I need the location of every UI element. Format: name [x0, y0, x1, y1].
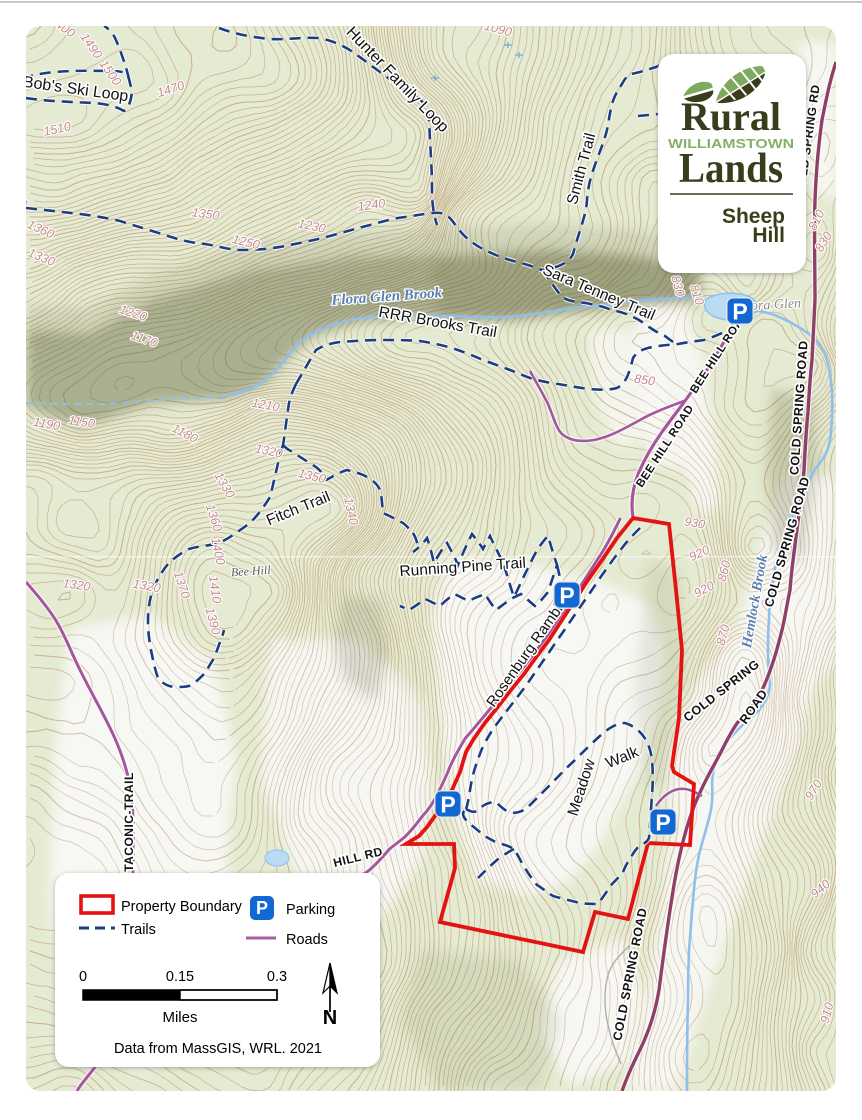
svg-text:Rural: Rural [681, 94, 781, 139]
svg-text:P: P [732, 299, 747, 325]
svg-text:Trails: Trails [121, 922, 156, 938]
svg-text:Miles: Miles [162, 1009, 197, 1026]
svg-text:TACONIC-TRAIL: TACONIC-TRAIL [122, 772, 136, 872]
svg-text:P: P [559, 583, 574, 609]
svg-text:Lands: Lands [679, 146, 783, 192]
svg-text:N: N [323, 1007, 337, 1029]
svg-text:P: P [256, 898, 268, 918]
svg-text:Data from MassGIS, WRL. 2021: Data from MassGIS, WRL. 2021 [114, 1041, 322, 1057]
svg-text:P: P [655, 810, 670, 836]
svg-text:Roads: Roads [286, 932, 328, 948]
svg-text:0.3: 0.3 [267, 969, 287, 985]
svg-text:0.15: 0.15 [166, 969, 194, 985]
svg-text:0: 0 [79, 969, 87, 985]
svg-text:Hill: Hill [752, 224, 785, 247]
svg-text:Bee Hill: Bee Hill [230, 563, 271, 580]
svg-text:P: P [440, 792, 455, 818]
svg-text:Property Boundary: Property Boundary [121, 899, 243, 915]
svg-text:850: 850 [633, 372, 656, 389]
svg-text:Parking: Parking [286, 902, 335, 918]
